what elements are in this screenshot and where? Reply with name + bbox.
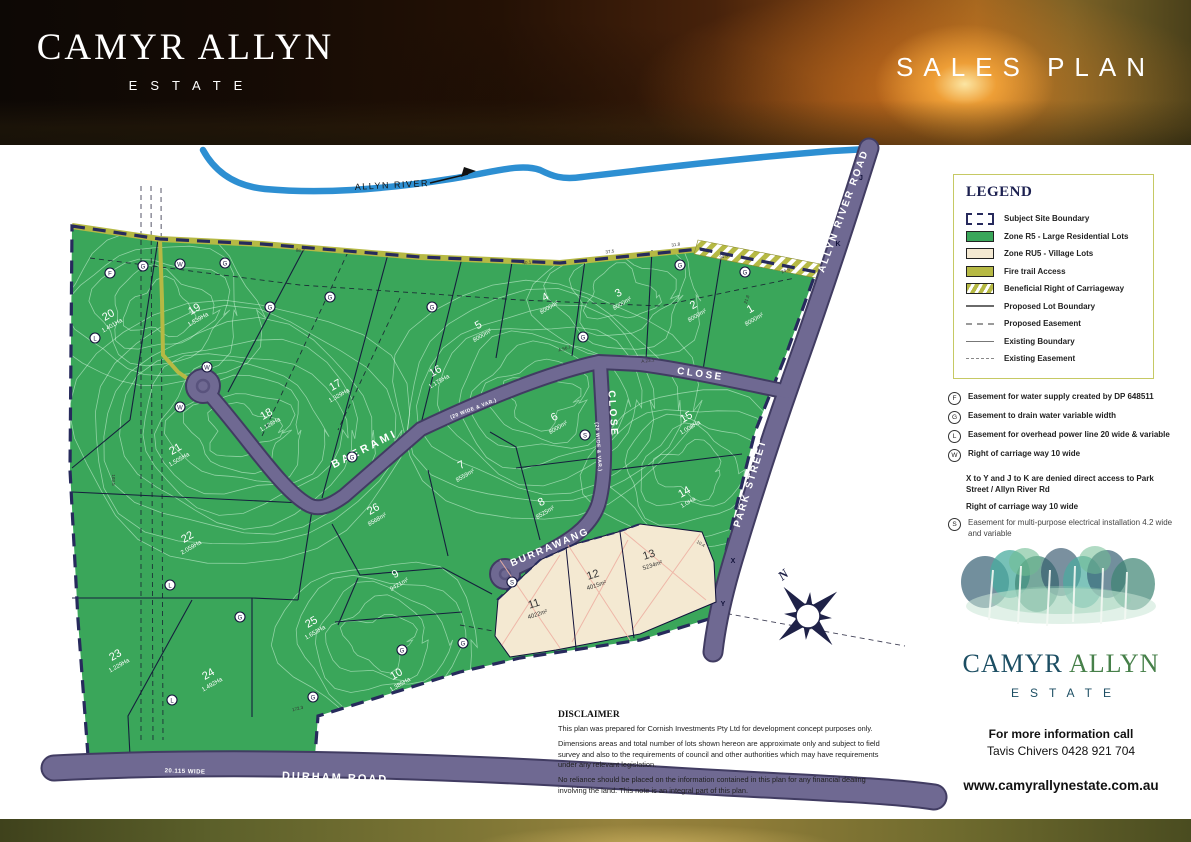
easement-marker-g: G bbox=[427, 302, 437, 312]
easement-marker-l: L bbox=[167, 695, 177, 705]
dimension-label: 40.1 bbox=[522, 260, 532, 266]
page-title: SALES PLAN bbox=[896, 52, 1155, 83]
easement-marker-w: W bbox=[175, 402, 185, 412]
marker-letter: G bbox=[141, 264, 146, 270]
dimension-label: 31.8 bbox=[671, 241, 681, 247]
legend-label: Beneficial Right of Carriageway bbox=[1004, 284, 1124, 293]
easement-marker-g: G bbox=[138, 261, 148, 271]
easement-marker-w: W bbox=[202, 362, 212, 372]
legend-label: Subject Site Boundary bbox=[1004, 214, 1089, 223]
note-text: X to Y and J to K are denied direct acce… bbox=[966, 474, 1178, 496]
marker-letter: G bbox=[430, 305, 435, 311]
marker-letter: W bbox=[177, 262, 183, 268]
disclaimer-paragraphs: This plan was prepared for Cornish Inves… bbox=[558, 724, 890, 796]
easement-marker-s: S bbox=[580, 430, 590, 440]
estate-subtitle: ESTATE bbox=[41, 78, 343, 93]
easement-marker-g: G bbox=[578, 332, 588, 342]
easement-marker-g: G bbox=[220, 258, 230, 268]
trees-watercolor bbox=[955, 540, 1167, 642]
legend-label: Fire trail Access bbox=[1004, 267, 1066, 276]
compass-rose: N bbox=[774, 565, 837, 645]
circled-g-icon: G bbox=[948, 411, 961, 424]
note-text: Easement for multi-purpose electrical in… bbox=[968, 518, 1178, 540]
brand-name-camyr: CAMYR bbox=[963, 649, 1063, 678]
website-link[interactable]: www.camyrallynestate.com.au bbox=[943, 778, 1179, 793]
legend-item: Beneficial Right of Carriageway bbox=[966, 280, 1141, 298]
easement-marker-w: W bbox=[175, 259, 185, 269]
note-text: Easement for water supply created by DP … bbox=[968, 392, 1154, 403]
note-row: GEasement to drain water variable width bbox=[948, 411, 1178, 424]
legend-label: Proposed Lot Boundary bbox=[1004, 302, 1095, 311]
easement-marker-l: L bbox=[165, 580, 175, 590]
contact-block: For more information call Tavis Chivers … bbox=[943, 727, 1179, 758]
legend-title: LEGEND bbox=[966, 184, 1141, 201]
legend-label: Existing Boundary bbox=[1004, 337, 1075, 346]
marker-letter: G bbox=[743, 270, 748, 276]
note-text: Right of carriage way 10 wide bbox=[968, 449, 1080, 460]
legend-items: Subject Site BoundaryZone R5 - Large Res… bbox=[966, 210, 1141, 368]
marker-letter: G bbox=[461, 641, 466, 647]
cream-swatch bbox=[966, 248, 994, 259]
marker-letter: G bbox=[678, 263, 683, 269]
legend-label: Proposed Easement bbox=[1004, 319, 1081, 328]
legend-item: Zone RU5 - Village Lots bbox=[966, 245, 1141, 263]
note-row: LEasement for overhead power line 20 wid… bbox=[948, 430, 1178, 443]
easement-marker-f: F bbox=[105, 268, 115, 278]
branding-block: CAMYR ALLYN ESTATE bbox=[943, 540, 1179, 700]
marker-letter: G bbox=[581, 335, 586, 341]
marker-letter: W bbox=[177, 405, 183, 411]
access-point-k: K bbox=[835, 241, 840, 248]
disclaimer-title: DISCLAIMER bbox=[558, 710, 890, 720]
legend-item: Existing Easement bbox=[966, 350, 1141, 368]
river-label: ALLYN RIVER bbox=[354, 178, 429, 192]
compass-north-label: N bbox=[774, 565, 792, 584]
line-dash-swatch bbox=[966, 323, 994, 325]
marker-letter: F bbox=[108, 271, 112, 277]
legend-item: Existing Boundary bbox=[966, 333, 1141, 351]
note-text: Easement for overhead power line 20 wide… bbox=[968, 430, 1170, 441]
marker-letter: S bbox=[583, 433, 587, 439]
easement-marker-g: G bbox=[308, 692, 318, 702]
dimension-label: 103.5 bbox=[111, 474, 116, 486]
footer-photo-strip bbox=[0, 819, 1191, 842]
marker-letter: G bbox=[350, 455, 355, 461]
line-solid-swatch bbox=[966, 305, 994, 307]
legend-item: Proposed Lot Boundary bbox=[966, 298, 1141, 316]
marker-letter: G bbox=[328, 295, 333, 301]
marker-letter: G bbox=[238, 615, 243, 621]
circled-w-icon: W bbox=[948, 449, 961, 462]
circled-f-icon: F bbox=[948, 392, 961, 405]
marker-letter: G bbox=[400, 648, 405, 654]
marker-letter: G bbox=[268, 305, 273, 311]
legend-label: Zone R5 - Large Residential Lots bbox=[1004, 232, 1128, 241]
access-point-j: J bbox=[859, 175, 863, 182]
easement-marker-g: G bbox=[265, 302, 275, 312]
disclaimer-block: DISCLAIMER This plan was prepared for Co… bbox=[558, 710, 890, 801]
easement-marker-g: G bbox=[397, 645, 407, 655]
legend: LEGEND Subject Site BoundaryZone R5 - La… bbox=[953, 174, 1154, 379]
circled-s-icon: S bbox=[948, 518, 961, 531]
easement-marker-g: G bbox=[458, 638, 468, 648]
disclaimer-paragraph: This plan was prepared for Cornish Inves… bbox=[558, 724, 890, 734]
brand-name: CAMYR ALLYN bbox=[943, 649, 1179, 679]
note-row: FEasement for water supply created by DP… bbox=[948, 392, 1178, 405]
green-swatch bbox=[966, 231, 994, 242]
brand-subtitle: ESTATE bbox=[954, 686, 1179, 700]
marker-letter: S bbox=[510, 580, 514, 586]
line-thin-swatch bbox=[966, 341, 994, 342]
hatch-swatch bbox=[966, 283, 994, 294]
brand-name-allyn: ALLYN bbox=[1069, 649, 1160, 678]
note-row: SEasement for multi-purpose electrical i… bbox=[948, 518, 1178, 540]
easement-marker-g: G bbox=[347, 452, 357, 462]
olive-swatch bbox=[966, 266, 994, 277]
marker-letter: G bbox=[223, 261, 228, 267]
legend-item: Subject Site Boundary bbox=[966, 210, 1141, 228]
access-point-x: X bbox=[731, 558, 736, 565]
note-row: WRight of carriage way 10 wide bbox=[948, 449, 1178, 462]
note-text: Right of carriage way 10 wide bbox=[966, 502, 1078, 513]
legend-item: Fire trail Access bbox=[966, 263, 1141, 281]
allyn-river bbox=[203, 149, 868, 191]
note-text: Easement to drain water variable width bbox=[968, 411, 1116, 422]
easement-marker-g: G bbox=[740, 267, 750, 277]
legend-item: Zone R5 - Large Residential Lots bbox=[966, 228, 1141, 246]
marker-letter: W bbox=[204, 365, 210, 371]
durham-road-label: DURHAM ROAD bbox=[282, 770, 389, 786]
easement-notes: FEasement for water supply created by DP… bbox=[948, 392, 1178, 546]
estate-logo: CAMYR ALLYN ESTATE bbox=[28, 26, 343, 93]
disclaimer-paragraph: Dimensions areas and total number of lot… bbox=[558, 739, 890, 770]
access-point-y: Y bbox=[721, 601, 726, 608]
easement-marker-l: L bbox=[90, 333, 100, 343]
legend-item: Proposed Easement bbox=[966, 315, 1141, 333]
sales-plan-page: CAMYR ALLYN ESTATE SALES PLAN ALLYN RIVE… bbox=[0, 0, 1191, 842]
easement-marker-g: G bbox=[675, 260, 685, 270]
easement-marker-g: G bbox=[325, 292, 335, 302]
circled-l-icon: L bbox=[948, 430, 961, 443]
contact-callout: For more information call bbox=[943, 727, 1179, 741]
note-row: X to Y and J to K are denied direct acce… bbox=[948, 474, 1178, 496]
easement-marker-g: G bbox=[235, 612, 245, 622]
contact-phone: Tavis Chivers 0428 921 704 bbox=[943, 744, 1179, 758]
boundary-swatch bbox=[966, 213, 994, 225]
legend-label: Zone RU5 - Village Lots bbox=[1004, 249, 1093, 258]
marker-letter: G bbox=[311, 695, 316, 701]
disclaimer-paragraph: No reliance should be placed on the info… bbox=[558, 775, 890, 796]
legend-label: Existing Easement bbox=[1004, 354, 1075, 363]
line-thindash-swatch bbox=[966, 358, 994, 359]
dimension-label: 37.5 bbox=[605, 249, 615, 255]
easement-marker-s: S bbox=[507, 577, 517, 587]
estate-name: CAMYR ALLYN bbox=[28, 26, 343, 69]
note-row: Right of carriage way 10 wide bbox=[948, 502, 1178, 513]
